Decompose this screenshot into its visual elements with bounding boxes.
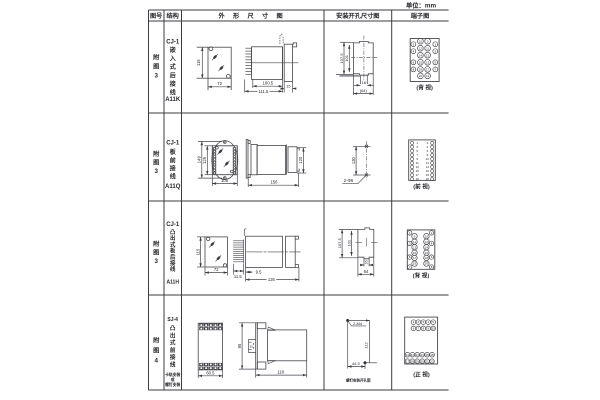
svg-text:附: 附 xyxy=(153,54,160,62)
svg-text:附: 附 xyxy=(153,240,160,248)
svg-text:2-Φ6: 2-Φ6 xyxy=(344,178,354,183)
svg-text:107.5: 107.5 xyxy=(339,53,344,64)
svg-text:4: 4 xyxy=(154,358,158,365)
svg-text:16: 16 xyxy=(430,353,434,357)
svg-text:111.5: 111.5 xyxy=(258,89,269,94)
svg-text:18: 18 xyxy=(419,68,423,72)
svg-text:图号: 图号 xyxy=(150,12,162,20)
svg-text:3: 3 xyxy=(154,168,158,175)
svg-text:图: 图 xyxy=(153,159,159,167)
svg-text:12: 12 xyxy=(419,46,423,50)
svg-text:11: 11 xyxy=(426,46,429,50)
svg-text:22: 22 xyxy=(430,359,434,363)
svg-text:10: 10 xyxy=(432,327,436,331)
svg-text:11: 11 xyxy=(413,240,416,244)
svg-text:16: 16 xyxy=(425,251,429,255)
svg-text:3: 3 xyxy=(154,73,158,80)
svg-text:附: 附 xyxy=(153,150,160,158)
svg-text:14: 14 xyxy=(421,353,425,357)
svg-text:接: 接 xyxy=(170,259,176,267)
svg-text:17: 17 xyxy=(406,359,410,363)
svg-text:17: 17 xyxy=(426,68,430,72)
svg-text:3: 3 xyxy=(154,258,158,265)
svg-text:35: 35 xyxy=(250,345,254,349)
svg-text:72: 72 xyxy=(214,267,219,272)
svg-text:112: 112 xyxy=(363,342,368,349)
svg-text:115: 115 xyxy=(196,59,201,66)
svg-text:图: 图 xyxy=(153,63,159,71)
svg-text:13: 13 xyxy=(413,245,417,249)
svg-text:15: 15 xyxy=(426,60,430,64)
svg-text:板: 板 xyxy=(170,148,177,156)
svg-text:式: 式 xyxy=(170,240,176,248)
svg-text:20: 20 xyxy=(425,262,429,266)
svg-text:130: 130 xyxy=(351,156,356,164)
svg-text:结构: 结构 xyxy=(167,12,179,20)
svg-text:101: 101 xyxy=(346,239,351,246)
svg-text:(前 视): (前 视) xyxy=(413,183,430,191)
svg-text:13: 13 xyxy=(416,353,420,357)
svg-text:95: 95 xyxy=(237,343,242,348)
svg-text:板: 板 xyxy=(170,247,176,255)
svg-text:11: 11 xyxy=(406,353,409,357)
svg-text:118: 118 xyxy=(277,370,284,375)
svg-text:前: 前 xyxy=(170,157,176,165)
svg-text:2-M4: 2-M4 xyxy=(353,321,363,326)
svg-text:入: 入 xyxy=(169,56,176,63)
svg-text:(64): (64) xyxy=(360,88,368,93)
svg-text:19: 19 xyxy=(416,177,420,181)
svg-text:凸: 凸 xyxy=(170,228,175,236)
svg-text:后: 后 xyxy=(170,72,176,80)
svg-text:15: 15 xyxy=(413,251,417,255)
svg-text:卡轨安装: 卡轨安装 xyxy=(165,372,180,377)
svg-text:20: 20 xyxy=(419,74,423,78)
svg-text:17: 17 xyxy=(413,256,417,260)
svg-text:120: 120 xyxy=(298,156,303,164)
svg-text:13: 13 xyxy=(426,53,430,57)
svg-text:前: 前 xyxy=(170,346,176,354)
svg-text:(背 视): (背 视) xyxy=(413,272,430,280)
svg-text:15: 15 xyxy=(425,353,429,357)
svg-text:18: 18 xyxy=(411,359,415,363)
svg-text:CJ-1: CJ-1 xyxy=(166,141,180,147)
svg-text:19: 19 xyxy=(413,262,417,266)
svg-text:A11K: A11K xyxy=(165,97,181,103)
svg-text:10: 10 xyxy=(425,234,429,238)
svg-text:或: 或 xyxy=(171,377,175,382)
svg-text:16: 16 xyxy=(362,80,367,85)
svg-text:外形尺寸图: 外形尺寸图 xyxy=(219,12,291,20)
svg-text:CJ-1: CJ-1 xyxy=(166,40,180,46)
svg-text:图: 图 xyxy=(153,347,159,355)
svg-text:出: 出 xyxy=(170,234,175,242)
svg-text:CJ-1: CJ-1 xyxy=(166,222,180,228)
svg-text:SJ-4: SJ-4 xyxy=(167,317,178,323)
svg-text:接: 接 xyxy=(170,353,176,361)
svg-text:16: 16 xyxy=(419,60,423,64)
svg-text:126: 126 xyxy=(268,277,276,282)
svg-text:12: 12 xyxy=(425,240,429,244)
svg-text:出: 出 xyxy=(170,331,176,339)
svg-text:60.5: 60.5 xyxy=(206,370,215,375)
svg-text:72: 72 xyxy=(217,81,222,86)
svg-text:125: 125 xyxy=(202,156,207,164)
svg-text:21: 21 xyxy=(425,359,429,363)
svg-text:16: 16 xyxy=(365,260,369,264)
svg-text:9.5: 9.5 xyxy=(256,270,262,275)
svg-text:安装开孔尺寸图: 安装开孔尺寸图 xyxy=(336,12,379,20)
svg-text:后: 后 xyxy=(170,253,176,261)
svg-text:101: 101 xyxy=(344,54,349,61)
svg-text:10: 10 xyxy=(419,39,423,43)
svg-text:156: 156 xyxy=(271,180,279,185)
svg-text:线: 线 xyxy=(170,265,176,273)
svg-text:单位：mm: 单位：mm xyxy=(406,1,436,10)
svg-text:64: 64 xyxy=(364,269,369,274)
svg-text:18: 18 xyxy=(425,256,429,260)
svg-text:19: 19 xyxy=(416,359,420,363)
svg-text:附: 附 xyxy=(153,337,160,345)
svg-text:嵌: 嵌 xyxy=(170,46,176,54)
svg-text:14: 14 xyxy=(419,53,423,57)
svg-text:19: 19 xyxy=(426,74,430,78)
svg-text:20: 20 xyxy=(421,359,425,363)
svg-text:11.5: 11.5 xyxy=(234,274,243,279)
svg-text:20: 20 xyxy=(426,177,430,181)
svg-text:螺钉安装开孔图: 螺钉安装开孔图 xyxy=(346,377,371,382)
svg-text:(背 视): (背 视) xyxy=(416,83,433,91)
svg-text:线: 线 xyxy=(170,361,176,369)
svg-text:端子图: 端子图 xyxy=(411,12,430,20)
svg-text:线: 线 xyxy=(170,173,176,181)
svg-text:149: 149 xyxy=(197,156,202,164)
svg-text:105: 105 xyxy=(221,178,229,183)
svg-text:15: 15 xyxy=(286,83,291,88)
svg-text:图: 图 xyxy=(153,249,159,257)
svg-text:44.5: 44.5 xyxy=(352,361,361,366)
svg-text:式: 式 xyxy=(170,63,176,71)
svg-text:(正 视): (正 视) xyxy=(413,371,430,379)
svg-text:接: 接 xyxy=(169,165,176,173)
svg-text:14: 14 xyxy=(425,245,429,249)
svg-text:线: 线 xyxy=(170,89,176,97)
svg-text:115: 115 xyxy=(195,248,200,255)
svg-text:107.5: 107.5 xyxy=(337,237,342,248)
svg-text:A11Q: A11Q xyxy=(165,184,181,190)
svg-text:A11H: A11H xyxy=(166,280,179,286)
svg-text:12: 12 xyxy=(411,353,415,357)
svg-text:凸: 凸 xyxy=(170,324,176,332)
svg-text:100.5: 100.5 xyxy=(263,81,274,86)
svg-text:螺钉安装: 螺钉安装 xyxy=(165,382,180,387)
svg-text:接: 接 xyxy=(169,80,176,88)
svg-text:式: 式 xyxy=(170,339,176,347)
